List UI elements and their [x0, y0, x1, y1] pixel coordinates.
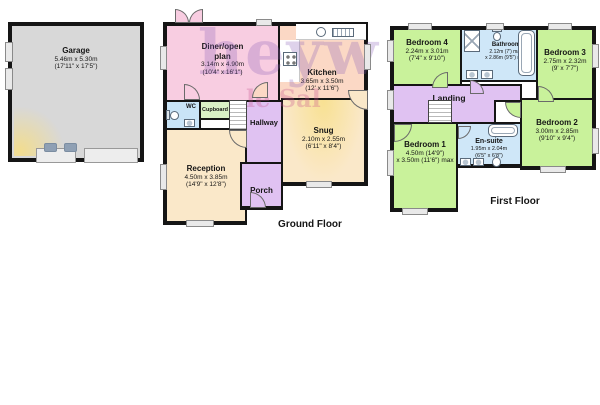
- bath-icon: [488, 124, 518, 137]
- room-dim-m: 2.24m x 3.01m: [394, 48, 460, 56]
- toilet-icon: [492, 157, 501, 167]
- room-bedroom2: Bedroom 2 3.00m x 2.85m (9'10" x 9'4"): [520, 98, 596, 170]
- garage-label: Garage 5.46m x 5.30m (17'11" x 17'5"): [12, 46, 140, 71]
- ensuite-label: En-suite 1.95m x 2.04m (6'5" x 6'8"): [458, 138, 520, 160]
- room-dim-ft: (9'10" x 9'4"): [522, 135, 592, 143]
- room-dim-ft: (6'11" x 8'4"): [283, 143, 364, 151]
- room-dim-m: 2.10m x 2.55m: [283, 136, 364, 144]
- window: [408, 23, 432, 30]
- room-cupboard: Cupboard: [199, 100, 231, 120]
- hob-icon: [283, 52, 297, 66]
- window: [486, 23, 504, 30]
- floorplan-canvas: Garage 5.46m x 5.30m (17'11" x 17'5") Di…: [0, 0, 600, 405]
- window: [540, 166, 566, 173]
- room-name: Bedroom 3: [538, 48, 592, 58]
- room-garage: Garage 5.46m x 5.30m (17'11" x 17'5"): [8, 22, 144, 162]
- room-dim-m: 3.00m x 2.85m: [522, 128, 592, 136]
- sink-icon: [473, 158, 484, 166]
- stairs: [229, 100, 247, 130]
- car-icon: [44, 143, 57, 152]
- sink-icon: [460, 158, 471, 166]
- room-dim-2: x 3.50m (11'6") max: [394, 157, 456, 165]
- window: [548, 23, 572, 30]
- window: [160, 164, 167, 190]
- window: [306, 181, 332, 188]
- room-bedroom4: Bedroom 4 2.24m x 3.01m (7'4" x 9'10"): [390, 26, 462, 88]
- drainer-icon: [332, 28, 354, 37]
- kitchen-sink-icon: [316, 27, 326, 37]
- window: [160, 46, 167, 70]
- reception-label: Reception 4.50m x 3.85m (14'9" x 12'8"): [167, 164, 245, 189]
- window: [387, 90, 394, 110]
- room-name: plan: [167, 52, 278, 62]
- window: [256, 19, 272, 26]
- room-dim-ft: (10'4" x 16'1"): [167, 69, 278, 77]
- room-name: En-suite: [458, 138, 520, 146]
- hallway-label: Hallway: [247, 118, 281, 127]
- toilet-icon: [170, 111, 179, 120]
- window: [5, 68, 13, 90]
- toilet-icon: [493, 32, 501, 41]
- room-dim-m: 1.95m x 2.04m: [458, 146, 520, 153]
- french-door-arc: [175, 9, 189, 23]
- room-name: Hallway: [247, 118, 281, 127]
- room-hallway: Hallway: [245, 100, 283, 164]
- room-name: Porch: [242, 186, 281, 196]
- sink-icon: [184, 119, 195, 127]
- room-name: Garage: [12, 46, 140, 56]
- room-dim-ft: (7'4" x 9'10"): [394, 55, 460, 63]
- french-door-arc: [189, 9, 203, 23]
- bedroom1-label: Bedroom 1 4.50m (14'9") x 3.50m (11'6") …: [394, 140, 456, 165]
- car-icon: [64, 143, 77, 152]
- room-dim-ft: (17'11" x 17'5"): [12, 63, 140, 71]
- room-name: Bedroom 4: [394, 38, 460, 48]
- wc-label: WC: [186, 104, 196, 110]
- porch-label: Porch: [242, 186, 281, 196]
- window: [364, 44, 371, 70]
- kitchen-counter: [296, 24, 366, 40]
- room-dim-m: 4.50m x 3.85m: [167, 174, 245, 182]
- window: [186, 220, 214, 227]
- cupboard-label: Cupboard: [201, 107, 229, 113]
- stairs: [428, 100, 452, 123]
- bedroom2-label: Bedroom 2 3.00m x 2.85m (9'10" x 9'4"): [522, 118, 592, 143]
- bedroom3-label: Bedroom 3 2.75m x 2.32m (9' x 7'7"): [538, 48, 592, 73]
- room-name: Bedroom 1: [394, 140, 456, 150]
- room-name: Snug: [283, 126, 364, 136]
- room-name: Diner/open: [167, 42, 278, 52]
- bedroom4-label: Bedroom 4 2.24m x 3.01m (7'4" x 9'10"): [394, 38, 460, 63]
- garage-door: [84, 148, 138, 163]
- room-dim-ft: (14'9" x 12'8"): [167, 181, 245, 189]
- door-arc: [470, 80, 484, 94]
- window: [592, 128, 599, 154]
- bath-icon: [518, 30, 535, 76]
- room-dim-m: 3.14m x 4.90m: [167, 61, 278, 69]
- room-dim-ft: (9' x 7'7"): [538, 65, 592, 73]
- window: [387, 40, 394, 62]
- window: [592, 44, 599, 68]
- window: [402, 208, 428, 215]
- diner-label: Diner/open plan 3.14m x 4.90m (10'4" x 1…: [167, 42, 278, 77]
- room-dim-m: 5.46m x 5.30m: [12, 56, 140, 64]
- window: [387, 150, 394, 176]
- room-dim-1: 4.50m (14'9"): [394, 150, 456, 158]
- sink-icon: [481, 70, 493, 79]
- sink-icon: [466, 70, 478, 79]
- snug-label: Snug 2.10m x 2.55m (6'11" x 8'4"): [283, 126, 364, 151]
- room-name: Bedroom 2: [522, 118, 592, 128]
- window: [5, 42, 13, 62]
- ground-floor-label: Ground Floor: [238, 219, 382, 230]
- first-floor-label: First Floor: [455, 196, 575, 207]
- room-name: Reception: [167, 164, 245, 174]
- room-snug: Snug 2.10m x 2.55m (6'11" x 8'4"): [281, 98, 368, 186]
- room-dim-m: 2.75m x 2.32m: [538, 58, 592, 66]
- shower-icon: [464, 30, 480, 52]
